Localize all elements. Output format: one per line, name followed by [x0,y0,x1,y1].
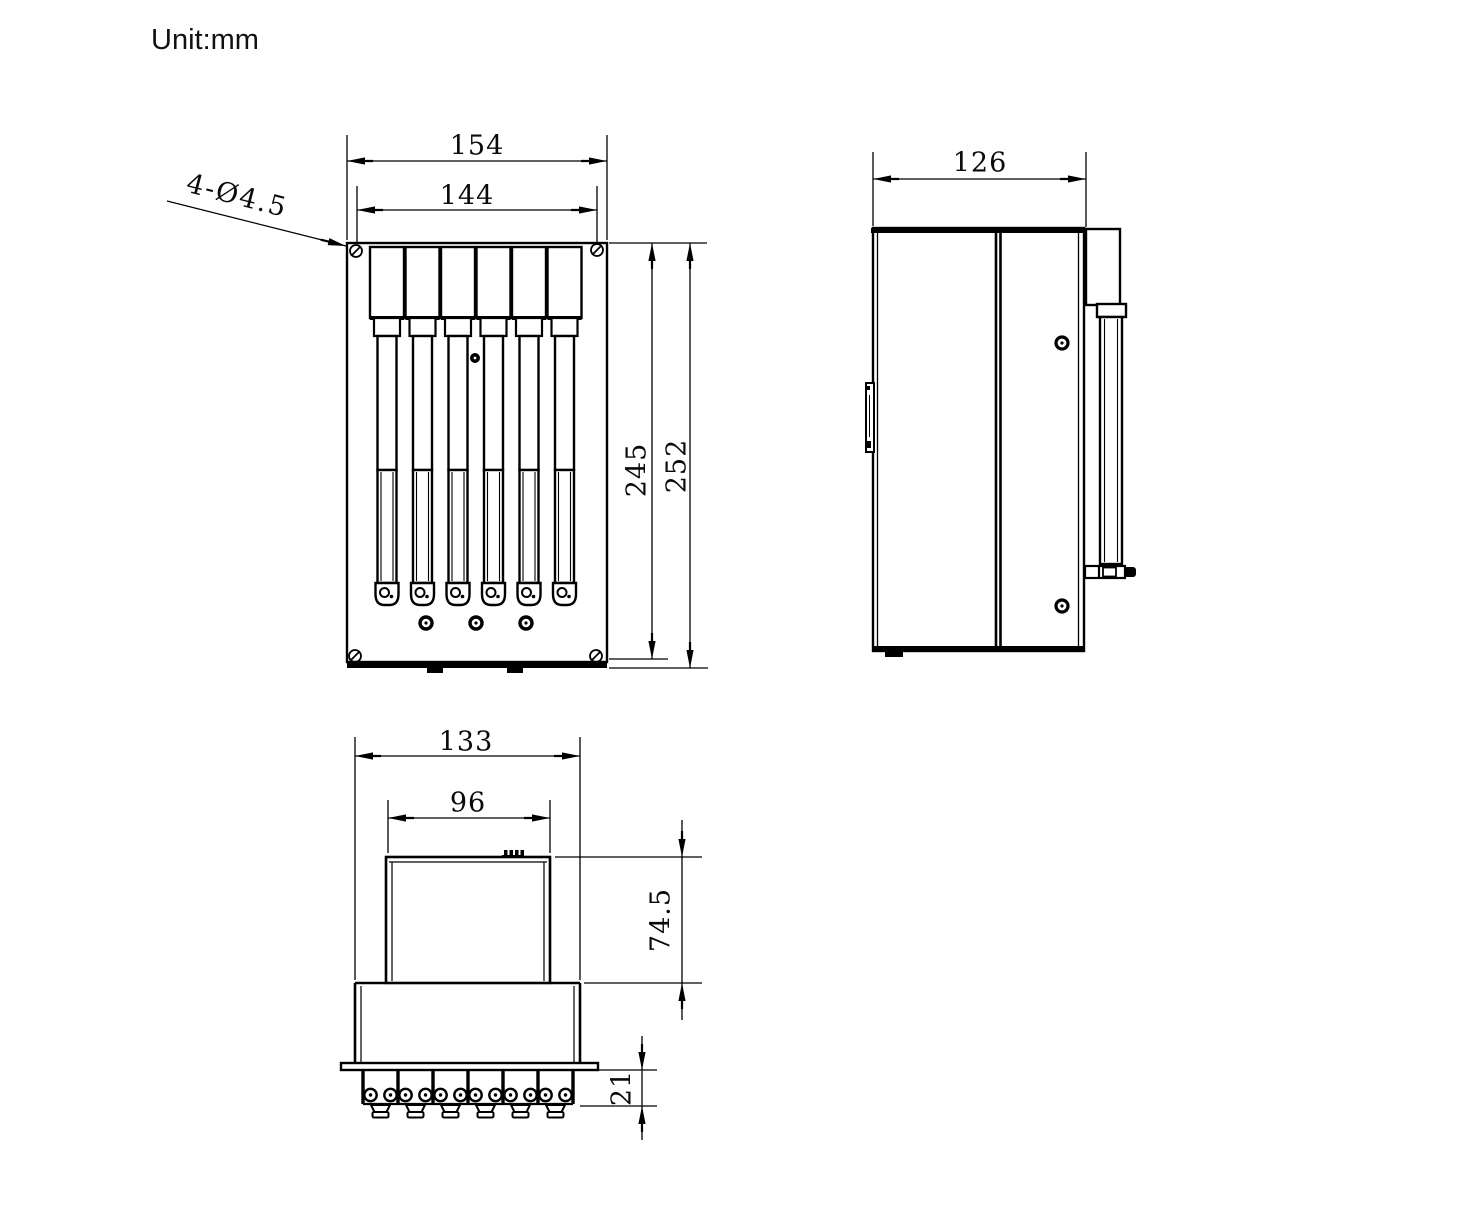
side-tube-assembly [1085,229,1136,578]
dim-label-side-depth: 126 [953,148,1008,179]
dim-label-bottom-width-inner: 96 [450,788,486,819]
bottom-upper-body [386,857,550,983]
side-tube-collar [1097,304,1126,317]
dim-label-front-height-outer: 252 [662,439,693,494]
side-top-lid [871,228,1086,233]
engineering-drawing-canvas: Unit:mm [0,0,1480,1221]
bottom-nozzles [371,1105,565,1118]
side-tube [1100,317,1122,564]
side-relay-block [1086,229,1120,305]
side-bracket-arm [1085,566,1136,578]
side-left-bracket [865,383,874,452]
bottom-flange [341,1063,598,1070]
side-body [873,228,1084,651]
front-relay-blocks [370,247,582,318]
side-bottom-edge [873,646,1084,652]
bottom-terminal-cells [363,1070,573,1104]
dim-label-bottom-height-body: 74.5 [646,888,677,952]
front-view [167,135,708,673]
dim-label-bottom-height-terminals: 21 [607,1070,638,1106]
dim-label-bottom-width-outer: 133 [439,727,494,758]
front-bottom-tab [507,668,523,673]
front-panel-base [347,661,607,668]
bottom-top-ridge [502,850,524,857]
side-foot-tab [885,652,903,657]
bottom-lower-body [355,983,580,1063]
dim-label-front-width-inner: 144 [440,181,495,212]
front-bottom-tab [427,668,443,673]
dim-label-front-width-outer: 154 [450,131,505,162]
side-view [865,152,1136,657]
dim-label-front-height-inner: 245 [622,443,653,498]
